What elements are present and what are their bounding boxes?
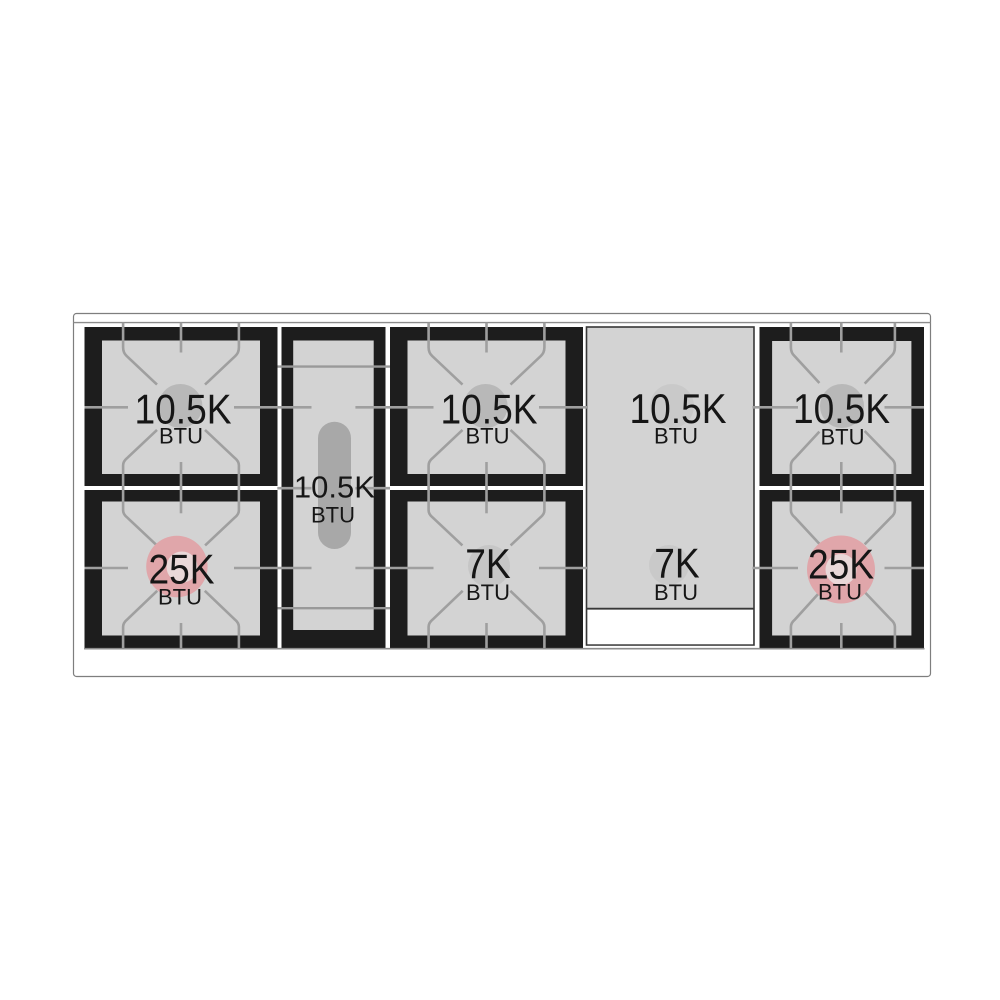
svg-text:BTU: BTU <box>654 424 698 449</box>
svg-text:BTU: BTU <box>654 580 698 605</box>
svg-text:BTU: BTU <box>466 424 510 449</box>
svg-text:10.5K: 10.5K <box>294 470 375 505</box>
svg-text:BTU: BTU <box>818 580 862 605</box>
svg-text:BTU: BTU <box>311 502 355 527</box>
svg-text:BTU: BTU <box>821 424 865 449</box>
svg-text:BTU: BTU <box>466 580 510 605</box>
svg-text:BTU: BTU <box>159 424 203 449</box>
svg-text:BTU: BTU <box>158 585 202 610</box>
